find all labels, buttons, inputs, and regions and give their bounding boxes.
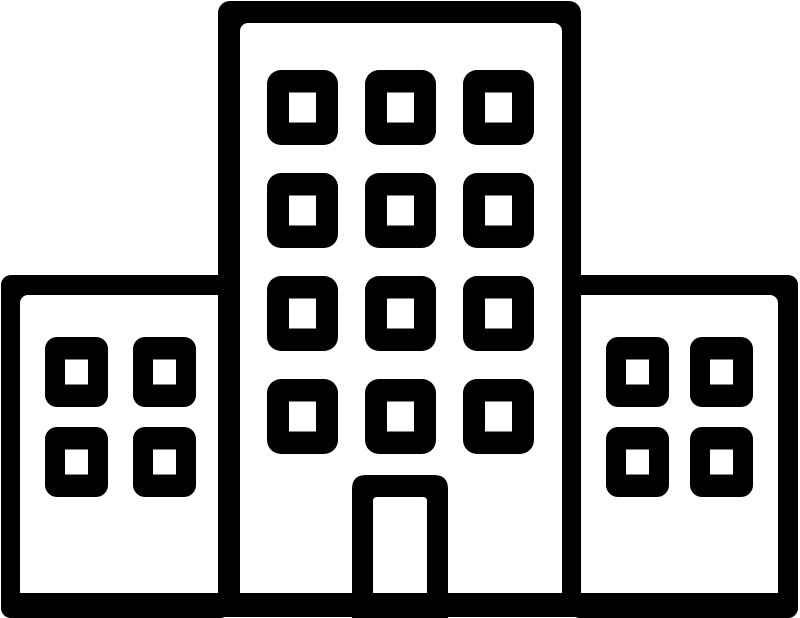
- window-pane: [387, 402, 414, 432]
- window-pane: [485, 196, 512, 226]
- door-opening: [373, 497, 427, 593]
- window-pane: [289, 93, 316, 123]
- window-pane: [153, 450, 176, 475]
- window-pane: [485, 402, 512, 432]
- icon-canvas: Black outline pictogram of a building co…: [0, 0, 800, 618]
- window-pane: [485, 299, 512, 329]
- window-pane: [485, 93, 512, 123]
- window-pane: [289, 402, 316, 432]
- window-pane: [387, 299, 414, 329]
- window-pane: [626, 360, 649, 385]
- window-pane: [289, 196, 316, 226]
- window-pane: [710, 360, 733, 385]
- window-pane: [387, 196, 414, 226]
- window-pane: [153, 360, 176, 385]
- window-pane: [65, 360, 88, 385]
- building-icon: Black outline pictogram of a building co…: [0, 0, 800, 618]
- window-pane: [710, 450, 733, 475]
- window-pane: [626, 450, 649, 475]
- window-pane: [387, 93, 414, 123]
- window-pane: [289, 299, 316, 329]
- window-pane: [65, 450, 88, 475]
